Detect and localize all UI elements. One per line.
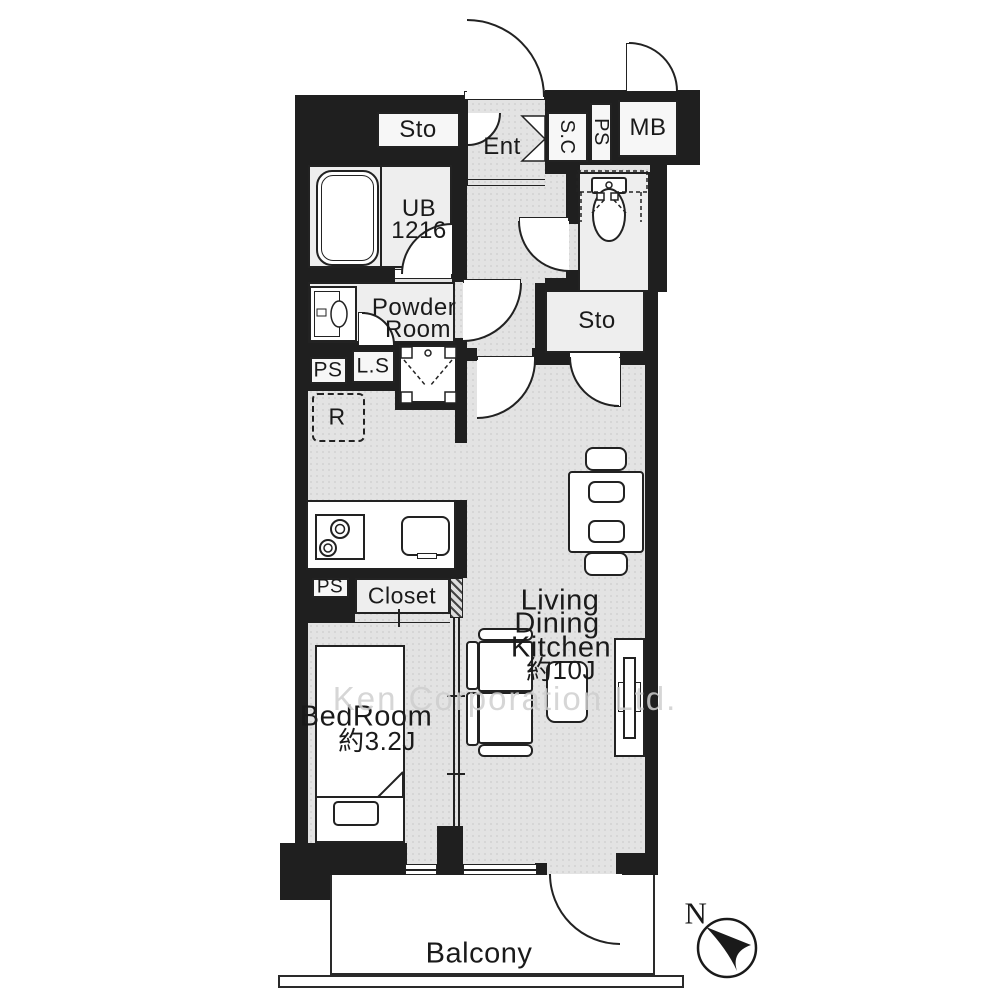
room-label-unit-bath-size: 1216 [391, 219, 446, 243]
room-label-ps-mid: PS [313, 360, 342, 381]
slider-tick-2 [447, 773, 465, 775]
dining-chair-top [585, 447, 627, 471]
sofa-armrest-bottom [478, 744, 533, 757]
ub-divider [380, 167, 382, 268]
slider-line-2 [458, 617, 460, 828]
dining-cushion-1 [588, 481, 625, 503]
room-label-balcony: Balcony [426, 940, 533, 969]
door-opening-storage [570, 353, 620, 364]
wall-toilet-right [650, 158, 667, 292]
door-arc-entrance [467, 20, 544, 97]
room-label-powder-2: Room [385, 318, 451, 342]
slider-pocket [450, 578, 463, 618]
wall-ub-bottom [308, 268, 395, 282]
window-bedroom-line [406, 869, 436, 871]
stove [315, 514, 365, 560]
door-leaf-toilet [519, 217, 569, 225]
room-label-shoe-closet: S.C [557, 120, 577, 155]
room-label-meter-box: MB [630, 116, 667, 140]
door-leaf-meter-box [626, 43, 632, 92]
dining-cushion-2 [588, 520, 625, 543]
floor-plan: Sto Ent S.C PS MB UB 1216 Powder Room PS… [0, 0, 1000, 1000]
wall-corner-br [616, 853, 658, 875]
closet-track [355, 613, 450, 623]
room-label-ps-top: PS [591, 118, 611, 146]
door-leaf-entrance [464, 91, 545, 100]
washbasin-inner [314, 291, 340, 337]
wall-sto-bottom-right [618, 353, 648, 365]
room-label-laundry: L.S [356, 356, 389, 377]
room-label-storage: Sto [578, 309, 616, 333]
door-leaf-powder-inner [358, 312, 365, 346]
window-ldk-line [464, 869, 536, 871]
toilet-tank [591, 177, 627, 194]
wall-ub-right [452, 160, 467, 282]
dining-chair-bottom [584, 552, 628, 576]
wall-corner-bl [280, 843, 332, 900]
wall-right [645, 283, 658, 865]
room-label-ps-bottom: PS [317, 578, 343, 597]
door-leaf-storage [614, 357, 621, 407]
door-arc-meter-box [629, 43, 677, 91]
wall-toilet-left-upper [566, 160, 578, 224]
sink-tab [417, 553, 437, 559]
room-label-refrigerator: R [328, 406, 345, 429]
room-label-closet: Closet [368, 585, 436, 608]
compass-north-label: N [685, 898, 708, 929]
entrance-threshold [467, 179, 545, 186]
balcony-slab [278, 975, 684, 988]
closet-track-tick [398, 609, 400, 627]
door-leaf-unit-bath [394, 269, 452, 279]
room-label-bedroom-size: 約3.2J [338, 728, 416, 754]
washer-pan [399, 345, 457, 403]
wall-partition-bottom [437, 826, 463, 875]
watermark: Ken Corporation Ltd. [333, 680, 678, 718]
room-label-sto-top: Sto [399, 118, 437, 142]
door-leaf-powder [463, 279, 521, 288]
room-label-entrance: Ent [483, 135, 521, 159]
slider-line-1 [453, 617, 455, 828]
sink [401, 516, 450, 556]
bed-pillow [333, 801, 379, 826]
door-leaf-hall [477, 356, 535, 365]
bathtub-inner [321, 175, 374, 261]
